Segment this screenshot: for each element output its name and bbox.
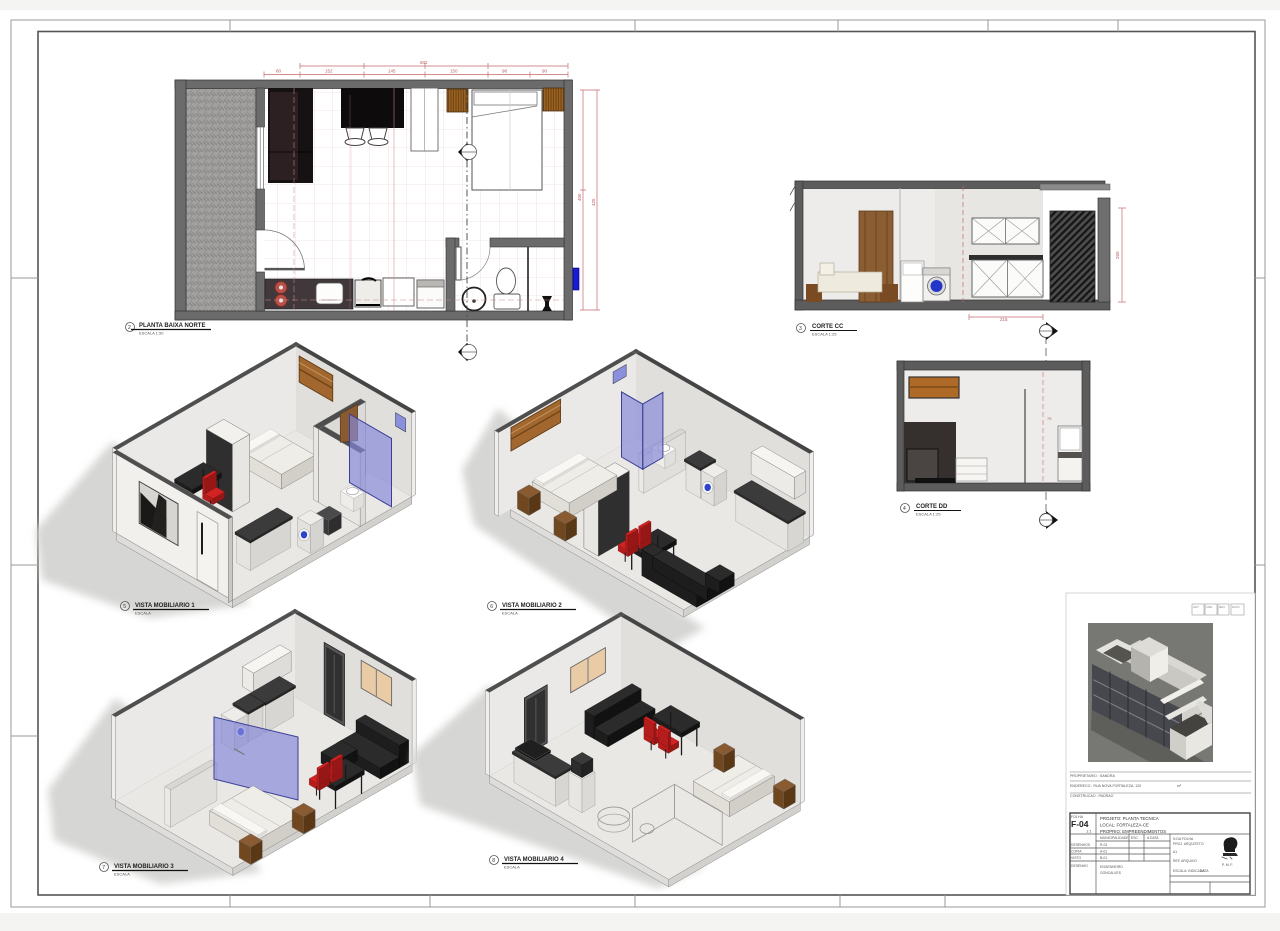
svg-text:VISTO: VISTO (1071, 856, 1081, 860)
svg-text:R-01: R-01 (1100, 843, 1107, 847)
svg-text:CONSTRUCAO : PADRAO: CONSTRUCAO : PADRAO (1070, 794, 1114, 798)
svg-text:REF. ARQUIVO: REF. ARQUIVO (1173, 859, 1197, 863)
svg-text:CORTE DD: CORTE DD (916, 504, 948, 510)
svg-text:VISTA MOBILIARIO 1: VISTA MOBILIARIO 1 (135, 603, 195, 609)
svg-text:A1: A1 (1173, 850, 1177, 854)
svg-text:DATA: DATA (1232, 605, 1240, 609)
svg-text:150: 150 (450, 69, 458, 74)
svg-text:PROJETO: PLANTA TECNICA: PROJETO: PLANTA TECNICA (1100, 816, 1159, 821)
svg-text:425: 425 (591, 198, 596, 206)
svg-text:PROPRIETARIO : SANDRA: PROPRIETARIO : SANDRA (1070, 774, 1115, 778)
svg-text:LOCAL: FORTALEZA-CE: LOCAL: FORTALEZA-CE (1100, 823, 1149, 828)
svg-text:ENGENHEIRO: ENGENHEIRO (1100, 865, 1123, 869)
svg-text:602: 602 (420, 60, 428, 65)
svg-text:8: 8 (492, 858, 495, 864)
svg-text:VISTA MOBILIARIO 2: VISTA MOBILIARIO 2 (502, 603, 562, 609)
svg-text:CRE: CRE (1206, 605, 1212, 609)
svg-text:ESCALA: ESCALA (135, 611, 151, 616)
svg-text:VISTA MOBILIARIO 3: VISTA MOBILIARIO 3 (114, 864, 174, 870)
svg-text:F-04: F-04 (1071, 819, 1089, 829)
svg-text:98: 98 (502, 69, 508, 74)
svg-text:DATA: DATA (1200, 869, 1209, 873)
svg-text:5: 5 (123, 604, 126, 610)
svg-text:4: 4 (903, 506, 906, 512)
svg-text:80: 80 (276, 69, 282, 74)
svg-text:ESCALA: ESCALA (114, 872, 130, 877)
svg-text:ESCALA: ESCALA (502, 611, 518, 616)
svg-text:DESENHO: DESENHO (1071, 864, 1088, 868)
svg-text:MUNICIPALIDADE: MUNICIPALIDADE (1100, 836, 1129, 840)
svg-text:ESCALA 1:25: ESCALA 1:25 (916, 512, 941, 517)
svg-text:B-01: B-01 (1100, 856, 1107, 860)
svg-text:6: 6 (490, 604, 493, 610)
svg-text:145: 145 (388, 69, 396, 74)
svg-text:PLANTA BAIXA NORTE: PLANTA BAIXA NORTE (139, 323, 205, 329)
svg-text:CORTE CC: CORTE CC (812, 324, 844, 330)
svg-text:ESCALA 1:25: ESCALA 1:25 (812, 332, 837, 337)
svg-text:ART: ART (1193, 605, 1199, 609)
svg-text:2: 2 (128, 325, 131, 331)
svg-text:P. M. F.: P. M. F. (1222, 863, 1233, 867)
svg-text:7: 7 (102, 865, 105, 871)
svg-text:75: 75 (1047, 416, 1052, 421)
svg-text:90: 90 (542, 69, 548, 74)
svg-text:PROPRIO: EMPREENDIMENTOS: PROPRIO: EMPREENDIMENTOS (1100, 829, 1166, 834)
svg-text:152: 152 (325, 69, 333, 74)
svg-text:N DA FOLHA: N DA FOLHA (1173, 837, 1194, 841)
svg-text:A DATA: A DATA (1147, 836, 1159, 840)
svg-text:3: 3 (799, 326, 802, 332)
svg-text:DESENHOS: DESENHOS (1071, 843, 1091, 847)
svg-text:COPIA: COPIA (1071, 850, 1082, 854)
svg-text:REV: REV (1219, 605, 1225, 609)
svg-text:GONCALVES: GONCALVES (1100, 871, 1122, 875)
svg-text:ESC: ESC (1131, 836, 1139, 840)
svg-text:VISTA MOBILIARIO 4: VISTA MOBILIARIO 4 (504, 857, 564, 863)
svg-text:1:1: 1:1 (1086, 829, 1092, 834)
svg-text:260: 260 (1115, 251, 1120, 259)
svg-text:ESCALA: ESCALA (504, 865, 520, 870)
svg-text:ESCALA 1:50: ESCALA 1:50 (139, 331, 164, 336)
svg-text:405: 405 (577, 193, 582, 201)
svg-text:ENDERECO : RUA NOVA FORTALEZA: ENDERECO : RUA NOVA FORTALEZA, 120 (1070, 784, 1141, 788)
svg-text:215: 215 (1000, 317, 1008, 322)
svg-text:PROJ. ARQUITETO: PROJ. ARQUITETO (1173, 842, 1204, 846)
svg-text:A-01: A-01 (1100, 850, 1107, 854)
